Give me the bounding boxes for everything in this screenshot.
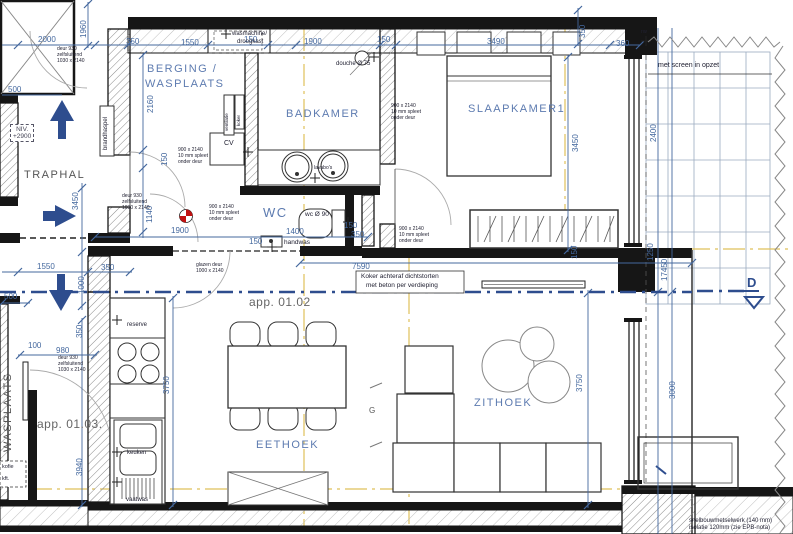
note-handwas: handwas: [284, 240, 310, 247]
apartment-label: app. 01.02: [249, 296, 311, 308]
burner: [141, 343, 159, 361]
note-vaatwas: vaatwas: [126, 497, 148, 503]
note-rw: rw: [641, 30, 647, 36]
floorplan-drawing: [0, 0, 793, 534]
dim-label: 500: [8, 86, 21, 94]
room-label-zithoek: ZITHOEK: [474, 398, 532, 409]
floorplan: 2000 350 1550 150 1900 150 3490 360 500 …: [0, 0, 793, 534]
note-koker: koker: [237, 115, 242, 126]
sideboard: [228, 472, 328, 505]
arrow-down: [49, 274, 73, 311]
note-g: G: [369, 407, 375, 415]
note-screen: met screen in opzet: [658, 62, 719, 69]
note-lavabos: lavabo's: [314, 166, 332, 171]
note-spleet: onder deur: [391, 116, 415, 121]
burner: [118, 365, 136, 383]
dim-label: 1400: [286, 228, 304, 236]
dim-label: 360: [616, 40, 629, 48]
dim-label: 3750: [576, 374, 584, 392]
dim-label: 1550: [181, 39, 199, 47]
dim-label: 350: [126, 38, 139, 46]
dim-label: 150: [571, 246, 579, 259]
note-wall-construction: isolatie 120mm (zie EPB-nota): [689, 525, 770, 531]
gas-marker: [370, 383, 382, 447]
note-wasmachine: droogkast: [237, 39, 263, 45]
dim-label: 150: [377, 36, 390, 44]
dim-label: 350: [76, 325, 84, 338]
dim-label: 1900: [304, 38, 322, 46]
note-koker-beton: Koker achteraf dichtstorten: [361, 274, 439, 281]
dim-label: 3450: [72, 192, 80, 210]
room-label-wc: WC: [263, 206, 288, 219]
dim-label: 100: [28, 342, 41, 350]
note-keuken: keuken: [127, 450, 146, 456]
dining-table: [228, 346, 346, 408]
note-cv: CV: [224, 140, 234, 147]
chair: [268, 322, 298, 348]
note-spleet: onder deur: [209, 217, 233, 222]
room-label-badkamer: BADKAMER: [286, 109, 360, 120]
note-reserve: reserve: [127, 322, 147, 328]
arrow-up: [50, 100, 74, 139]
note-wall-construction: snelbouwmetselwerk (140 mm): [689, 518, 772, 524]
dining-set: [228, 322, 346, 430]
note-fragment: kft.: [2, 477, 9, 483]
dim-label: 350: [579, 25, 587, 38]
dim-label: 3000: [669, 381, 677, 399]
room-label-berging: BERGING /: [147, 64, 217, 75]
chair: [230, 322, 260, 348]
dim-label: 2160: [147, 95, 155, 113]
dim-label: 1250: [647, 243, 655, 261]
note-wasmachine: wasmachine/: [232, 31, 267, 37]
burner: [118, 343, 136, 361]
wardrobe: [470, 210, 618, 248]
dim-label: 1960: [80, 20, 88, 38]
dim-label: 2400: [650, 124, 658, 142]
room-label-wasplaats: WASPLAATS: [3, 372, 14, 452]
cv-unit: [210, 133, 244, 165]
level-marker: NIV. +2900: [10, 124, 34, 142]
dim-label: 1000: [78, 276, 86, 294]
note-deur930: 1030 x 2140: [58, 368, 86, 373]
dim-label: 3490: [487, 38, 505, 46]
dim-label: 350: [101, 264, 114, 272]
dim-label: 3750: [163, 376, 171, 394]
dim-label: 980: [56, 347, 69, 355]
dim-label: 150: [344, 222, 357, 230]
bed: [447, 56, 551, 176]
burner: [141, 365, 159, 383]
cut-zigzag: [648, 37, 785, 533]
dim-label: 7590: [352, 263, 370, 271]
dim-label: 150: [249, 238, 262, 246]
note-brandhaspel: brandhaspel: [103, 117, 109, 150]
note-ventilatie: ventilatie: [225, 113, 230, 131]
dim-label: 1550: [37, 263, 55, 271]
dim-label: 1900: [171, 227, 189, 235]
niv-line1: NIV.: [16, 126, 28, 133]
dim-label: 500: [4, 293, 17, 301]
chair: [306, 322, 336, 348]
niv-line2: +2900: [13, 133, 31, 140]
note-fragment: kofie: [2, 465, 14, 471]
apartment-label: app. 01.03.: [37, 418, 103, 430]
note-deur930: 1030 x 2140: [122, 206, 150, 211]
note-koker-beton: met beton per verdieping: [366, 283, 438, 290]
room-label-traphal: TRAPHAL: [24, 170, 85, 181]
fire-extinguisher-marker: [180, 210, 193, 223]
section-marker-d: D: [744, 276, 759, 292]
note-wc-diameter: wc Ø 90: [305, 212, 329, 219]
note-douche: douche Ø 75: [336, 61, 370, 67]
kitchen: [110, 298, 165, 504]
note-deur930: 1030 x 2140: [57, 59, 85, 64]
dim-label: 150: [161, 153, 169, 166]
note-spleet: onder deur: [178, 160, 202, 165]
room-label-eethoek: EETHOEK: [256, 440, 319, 451]
room-label-berging: WASPLAATS: [145, 79, 225, 90]
dim-label: 2000: [38, 36, 56, 44]
section-d-triangle: [745, 297, 763, 308]
note-glazen-deur: 1000 x 2140: [196, 269, 224, 274]
dim-label: 3450: [572, 134, 580, 152]
sink-bowl: [120, 424, 156, 448]
coffee-tables: [482, 327, 570, 403]
dim-label: 3940: [76, 458, 84, 476]
note-spleet: onder deur: [399, 239, 423, 244]
dim-label: 17450: [661, 259, 669, 281]
room-label-slaapkamer: SLAAPKAMER1: [468, 104, 565, 115]
dim-label: 350: [351, 231, 364, 239]
